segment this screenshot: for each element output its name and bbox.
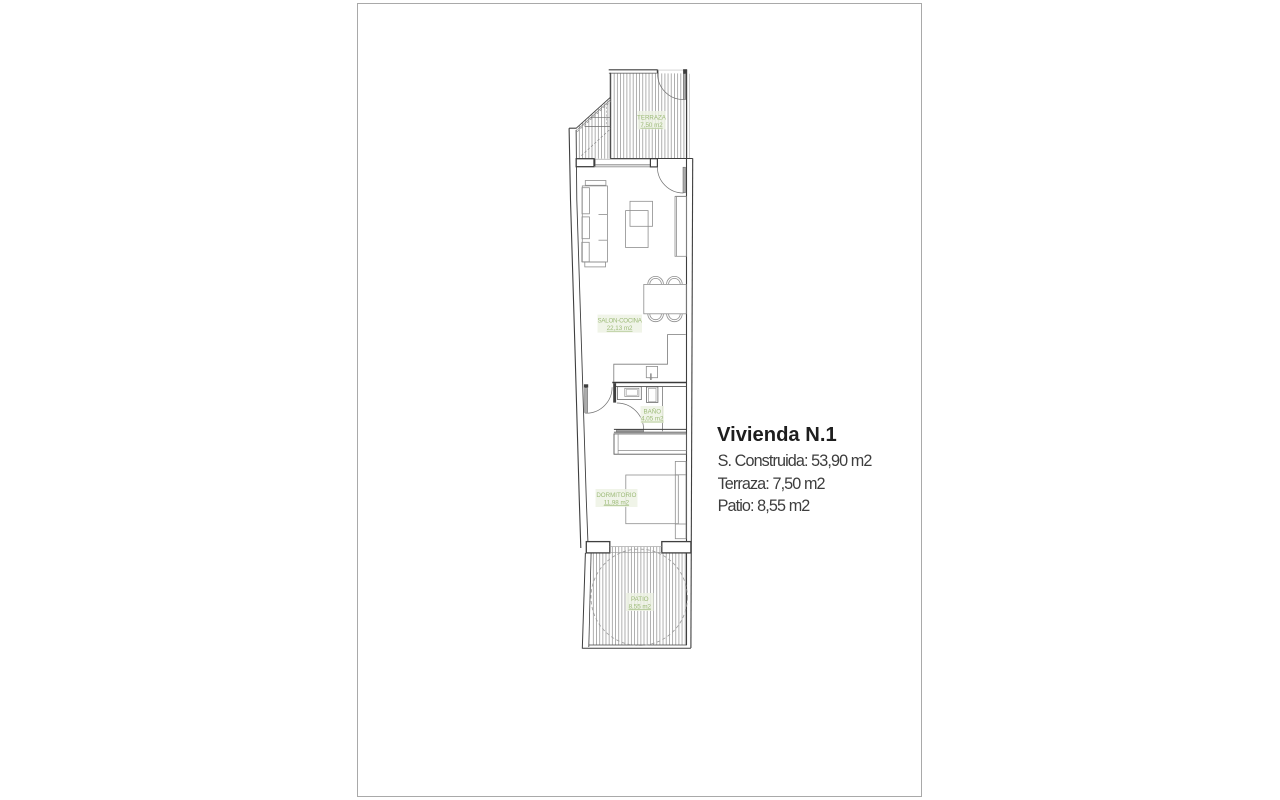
svg-text:PATIO: PATIO (631, 596, 649, 603)
svg-text:22,13 m2: 22,13 m2 (607, 325, 633, 332)
svg-text:DORMITORIO: DORMITORIO (596, 492, 636, 499)
svg-text:8,55 m2: 8,55 m2 (629, 603, 652, 610)
svg-text:7,50 m2: 7,50 m2 (640, 122, 663, 129)
svg-text:BAÑO: BAÑO (644, 408, 662, 415)
svg-text:4,05 m2: 4,05 m2 (641, 416, 664, 423)
svg-text:SALON-COCINA: SALON-COCINA (598, 318, 643, 325)
svg-text:TERRAZA: TERRAZA (637, 115, 667, 122)
svg-text:11,98 m2: 11,98 m2 (604, 499, 630, 506)
